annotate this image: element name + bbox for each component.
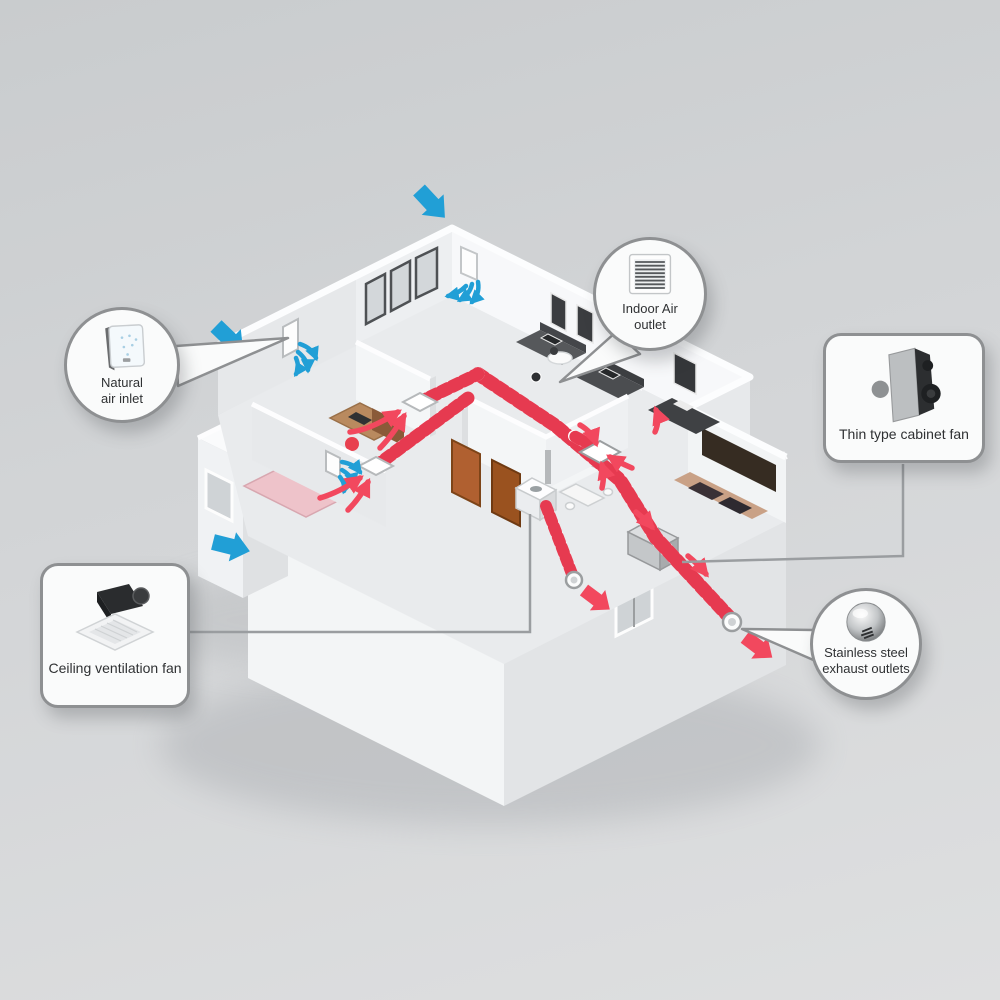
wall-inlet-fan-icon (94, 319, 150, 375)
chair (566, 503, 575, 510)
table-lamp (550, 347, 558, 355)
cabinet-fan-icon (864, 344, 944, 426)
grille-vent-icon (624, 249, 676, 301)
label-line: Natural (101, 375, 143, 391)
callout-natural-air-inlet: Natural air inlet (64, 307, 180, 423)
ventilation-diagram: Natural air inlet Indoor Air outlet Thin… (0, 0, 1000, 1000)
label-line: Stainless steel (822, 645, 909, 661)
callout-label: Ceiling ventilation fan (48, 660, 181, 677)
inlet-arrow (408, 180, 456, 228)
callout-ceiling-ventilation-fan: Ceiling ventilation fan (40, 563, 190, 708)
label-line: exhaust outlets (822, 661, 909, 677)
steel-dome-outlet-icon (843, 599, 889, 645)
callout-label: Natural air inlet (101, 375, 143, 407)
callout-label: Thin type cabinet fan (839, 426, 969, 443)
ceiling-fan-icon (67, 576, 163, 660)
floor-lamp (531, 372, 541, 382)
house-illustration (0, 0, 1000, 1000)
label-line: Indoor Air (622, 301, 678, 317)
callout-indoor-air-outlet: Indoor Air outlet (593, 237, 707, 351)
chair (604, 489, 613, 496)
callout-label: Stainless steel exhaust outlets (822, 645, 909, 677)
callout-label: Indoor Air outlet (622, 301, 678, 333)
label-line: outlet (622, 317, 678, 333)
callout-stainless-steel-exhaust-outlets: Stainless steel exhaust outlets (810, 588, 922, 700)
label-line: air inlet (101, 391, 143, 407)
callout-thin-type-cabinet-fan: Thin type cabinet fan (823, 333, 985, 463)
